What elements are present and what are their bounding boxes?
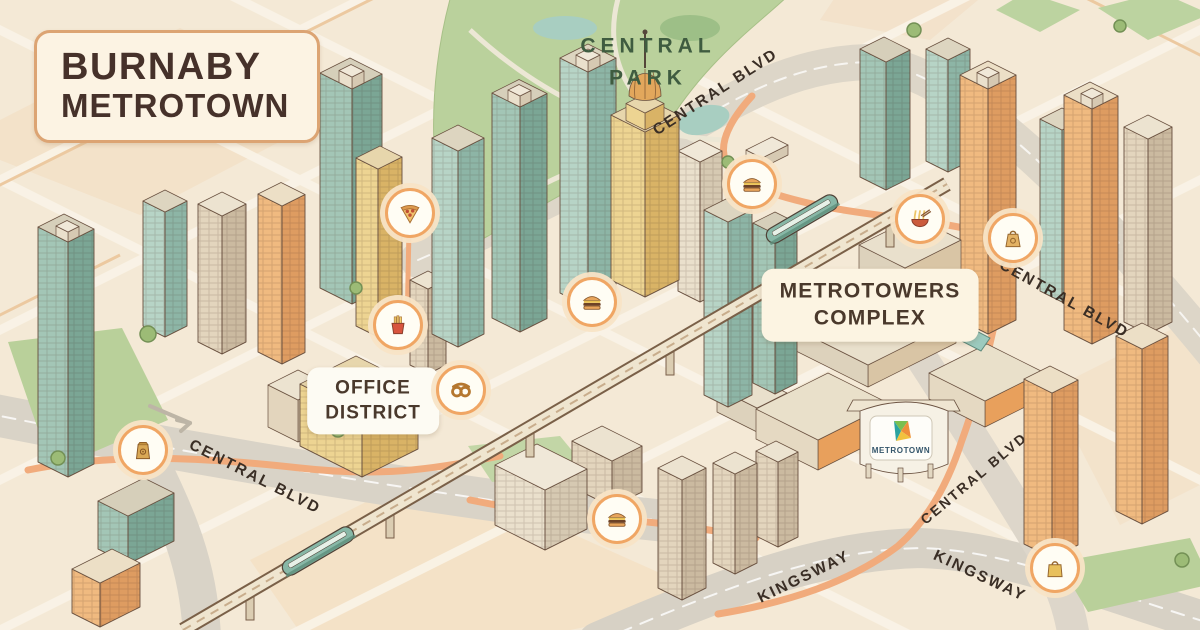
burger-icon[interactable] — [592, 494, 642, 544]
map-title-line2: METROTOWN — [61, 88, 289, 124]
map-title-card: BURNABY METROTOWN — [34, 30, 320, 143]
metrotowers-label-line1: METROTOWERS — [780, 278, 961, 305]
office-label-line2: DISTRICT — [325, 401, 421, 426]
shopping-bag-icon[interactable] — [1030, 543, 1080, 593]
fries-icon[interactable] — [373, 300, 423, 350]
mall-sign-text: METROTOWN — [872, 446, 931, 455]
office-label-line1: OFFICE — [325, 376, 421, 401]
takeout-bag-icon[interactable] — [988, 213, 1038, 263]
burger-icon[interactable] — [727, 159, 777, 209]
pretzel-icon[interactable] — [436, 365, 486, 415]
central-park-label-line2: PARK — [580, 62, 715, 94]
map-title-line1: BURNABY — [61, 47, 289, 88]
noodle-bowl-icon[interactable] — [895, 194, 945, 244]
metrotowers-label-line2: COMPLEX — [780, 305, 961, 332]
metrotowers-complex-label: METROTOWERS COMPLEX — [762, 269, 979, 342]
office-district-label: OFFICE DISTRICT — [307, 367, 439, 434]
central-park-label-line1: CENTRAL — [580, 31, 715, 63]
burger-icon[interactable] — [567, 277, 617, 327]
metrotown-map: METROTOWN — [0, 0, 1200, 630]
cafe-bag-icon[interactable] — [118, 425, 168, 475]
central-park-label: CENTRAL PARK — [580, 31, 715, 94]
pizza-icon[interactable] — [385, 188, 435, 238]
metrotown-logo — [894, 421, 911, 441]
